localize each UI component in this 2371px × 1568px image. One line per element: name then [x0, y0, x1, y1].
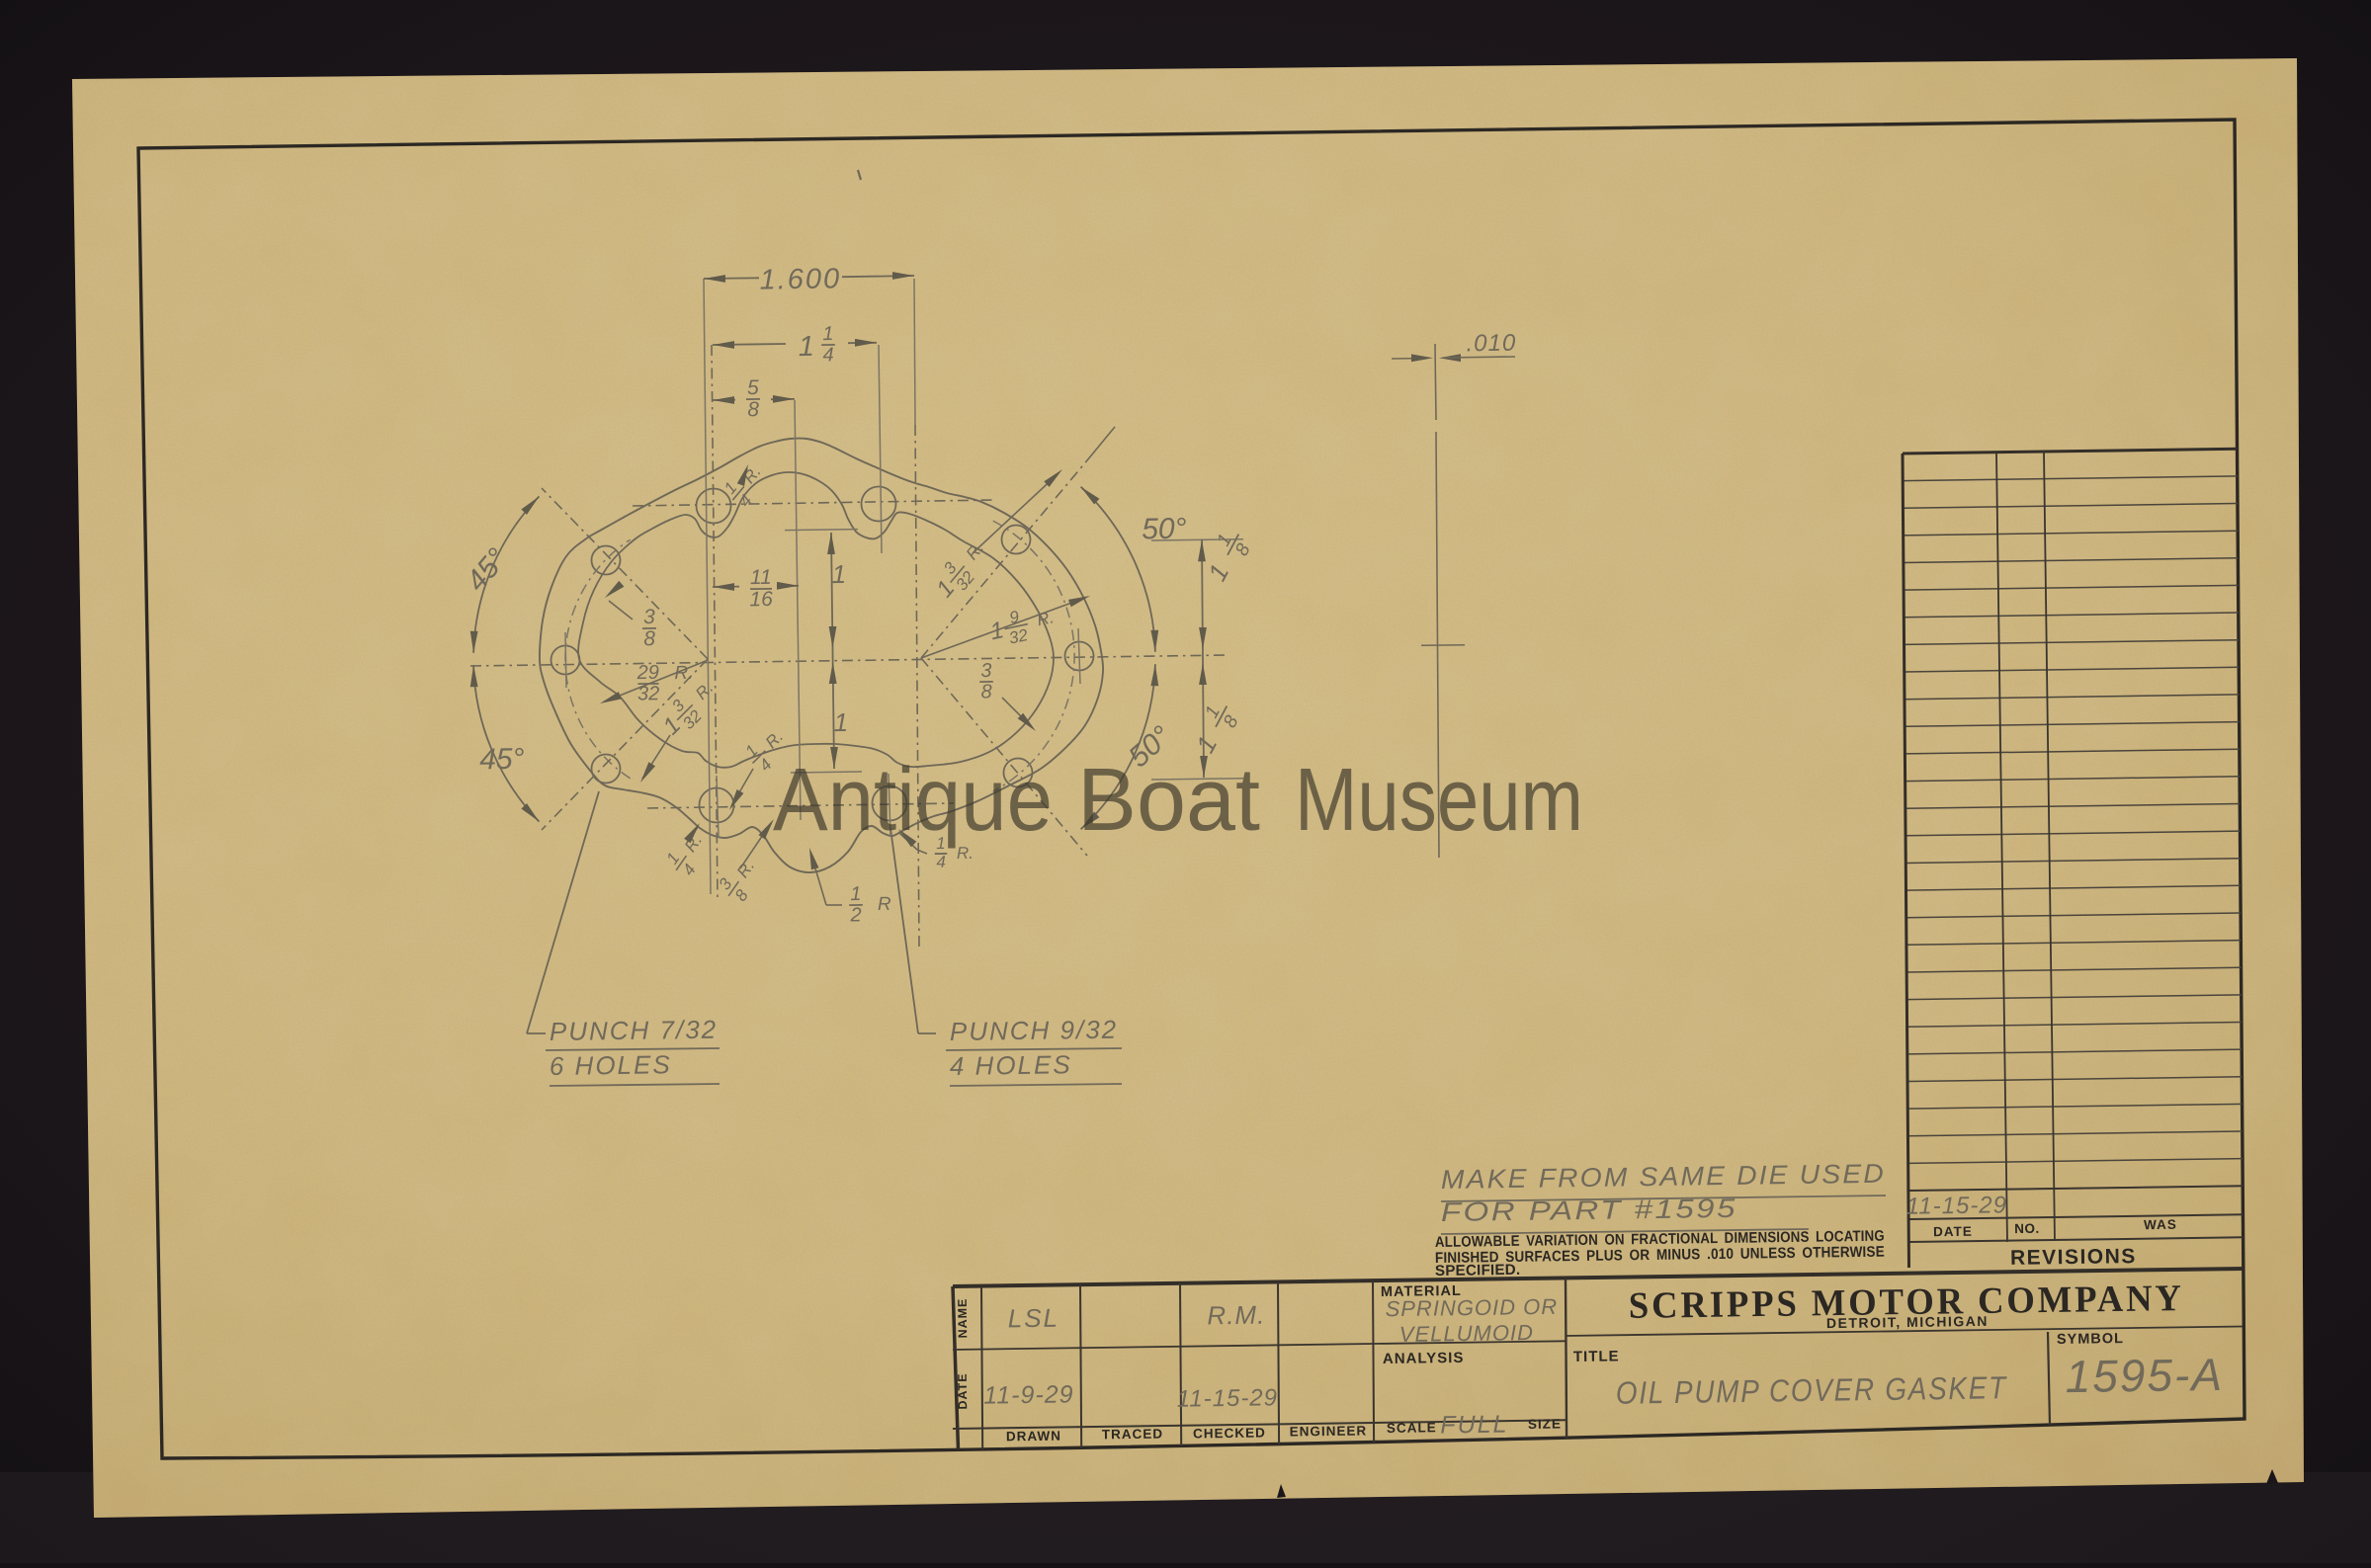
svg-text:2: 2 — [849, 904, 861, 926]
svg-text:PUNCH 9/32: PUNCH 9/32 — [950, 1015, 1119, 1046]
svg-text:.010: .010 — [1466, 330, 1516, 358]
svg-text:ENGINEER: ENGINEER — [1290, 1423, 1368, 1439]
svg-text:4: 4 — [936, 853, 946, 871]
svg-text:8: 8 — [643, 627, 655, 650]
svg-text:R.: R. — [674, 663, 693, 684]
svg-text:LSL: LSL — [1008, 1303, 1060, 1334]
svg-text:ANALYSIS: ANALYSIS — [1383, 1350, 1465, 1367]
svg-text:3: 3 — [643, 606, 655, 628]
svg-text:3: 3 — [980, 660, 991, 682]
svg-text:SYMBOL: SYMBOL — [2057, 1331, 2124, 1348]
svg-text:TRACED: TRACED — [1102, 1427, 1163, 1443]
svg-text:R: R — [878, 894, 891, 915]
svg-text:CHECKED: CHECKED — [1193, 1425, 1266, 1441]
svg-text:DATE: DATE — [956, 1372, 971, 1409]
svg-text:PUNCH 7/32: PUNCH 7/32 — [550, 1015, 719, 1046]
svg-text:11-15-29: 11-15-29 — [1177, 1384, 1279, 1412]
svg-text:REVISIONS: REVISIONS — [2010, 1245, 2137, 1270]
svg-text:50°: 50° — [1142, 513, 1187, 546]
svg-text:SPECIFIED.: SPECIFIED. — [1435, 1262, 1521, 1279]
svg-text:R.M.: R.M. — [1207, 1300, 1265, 1331]
svg-text:NAME: NAME — [956, 1298, 971, 1339]
svg-text:FOR PART #1595: FOR PART #1595 — [1441, 1194, 1737, 1227]
svg-text:1: 1 — [833, 707, 848, 737]
svg-text:Antique: Antique — [773, 751, 1053, 850]
svg-text:8: 8 — [980, 681, 991, 702]
svg-text:1.600: 1.600 — [759, 263, 841, 295]
svg-text:NO.: NO. — [2014, 1221, 2040, 1236]
svg-text:DETROIT, MICHIGAN: DETROIT, MICHIGAN — [1826, 1313, 1989, 1331]
svg-text:1: 1 — [799, 331, 815, 363]
svg-text:VELLUMOID: VELLUMOID — [1399, 1320, 1534, 1347]
svg-text:Boat: Boat — [1077, 751, 1260, 850]
svg-text:DATE: DATE — [1933, 1224, 1973, 1240]
svg-text:11-9-29: 11-9-29 — [983, 1380, 1074, 1409]
svg-text:8: 8 — [747, 398, 759, 421]
svg-text:1: 1 — [831, 559, 846, 589]
svg-text:TITLE: TITLE — [1573, 1348, 1620, 1365]
svg-text:6 HOLES: 6 HOLES — [550, 1049, 672, 1081]
svg-text:Museum: Museum — [1295, 751, 1583, 850]
svg-text:11: 11 — [750, 566, 772, 589]
svg-text:SPRINGOID OR: SPRINGOID OR — [1385, 1294, 1558, 1321]
svg-text:11-15-29: 11-15-29 — [1906, 1192, 2008, 1219]
svg-text:MAKE FROM SAME DIE USED: MAKE FROM SAME DIE USED — [1441, 1159, 1886, 1195]
svg-text:4: 4 — [822, 344, 833, 366]
svg-text:WAS: WAS — [2144, 1217, 2177, 1232]
svg-text:45°: 45° — [479, 743, 525, 777]
svg-text:4 HOLES: 4 HOLES — [950, 1049, 1072, 1081]
svg-text:5: 5 — [747, 376, 759, 399]
svg-text:OIL PUMP COVER GASKET: OIL PUMP COVER GASKET — [1616, 1369, 2008, 1411]
svg-text:1: 1 — [822, 323, 833, 345]
svg-text:SIZE: SIZE — [1528, 1417, 1562, 1432]
svg-text:FULL: FULL — [1440, 1411, 1509, 1440]
svg-text:DRAWN: DRAWN — [1006, 1429, 1061, 1444]
svg-text:1595-A: 1595-A — [2065, 1349, 2224, 1402]
svg-text:16: 16 — [749, 588, 773, 611]
svg-text:SCALE: SCALE — [1387, 1420, 1437, 1436]
svg-text:1: 1 — [850, 883, 861, 905]
